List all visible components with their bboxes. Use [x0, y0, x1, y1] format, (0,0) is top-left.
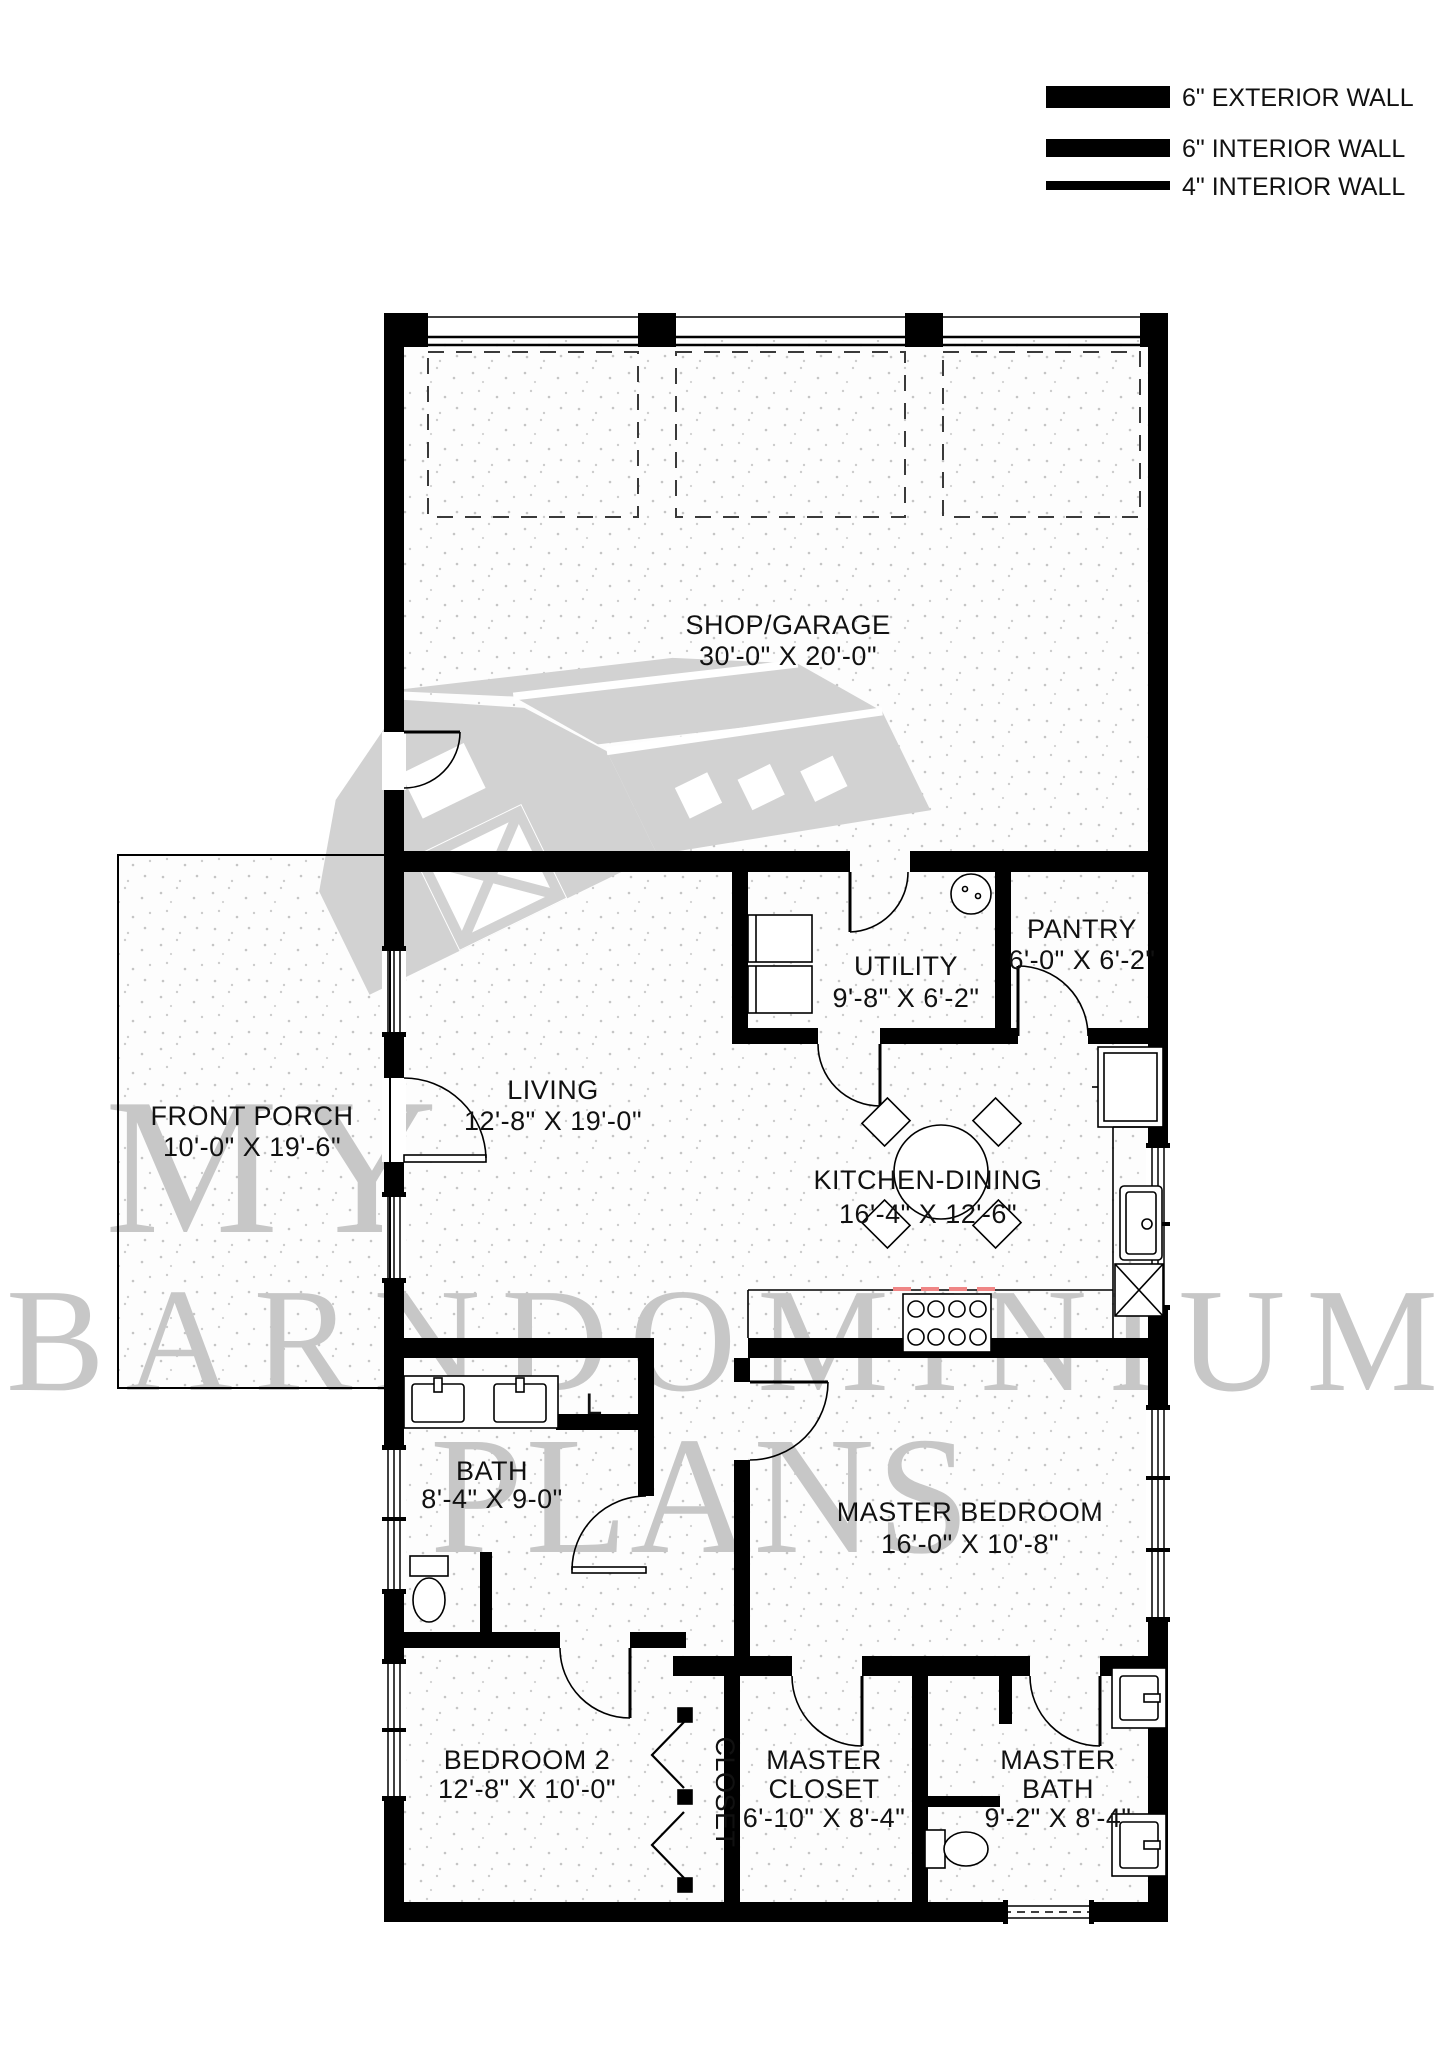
label-front-porch-dims: 10'-0" X 19'-6" — [163, 1132, 341, 1162]
label-living-dims: 12'-8" X 19'-0" — [464, 1106, 642, 1136]
label-bath-dims: 8'-4" X 9-0" — [421, 1484, 562, 1514]
label-master-closet-2: CLOSET — [768, 1774, 879, 1804]
bath-vanity — [404, 1376, 558, 1428]
label-bedroom2-dims: 12'-8" X 10'-0" — [438, 1774, 616, 1804]
label-master-bedroom: MASTER BEDROOM — [837, 1497, 1104, 1527]
window — [1003, 1900, 1094, 1924]
label-master-closet-1: MASTER — [766, 1745, 882, 1775]
label-shop-garage: SHOP/GARAGE — [685, 610, 890, 640]
kitchen-sink-icon — [1120, 1186, 1162, 1260]
label-utility-dims: 9'-8" X 6'-2" — [832, 983, 979, 1013]
wall-legend: 6" EXTERIOR WALL 6" INTERIOR WALL 4" INT… — [1046, 84, 1414, 201]
window — [382, 1192, 406, 1283]
water-heater-icon — [951, 874, 991, 914]
floor-plan-canvas: MY BARNDOMINIUM PLANS — [0, 0, 1445, 2050]
window — [382, 946, 406, 1037]
label-bedroom2: BEDROOM 2 — [444, 1745, 611, 1775]
exterior-wall-swatch — [1046, 86, 1170, 108]
watermark-barndominium: BARNDOMINIUM — [6, 1259, 1438, 1423]
window — [382, 1659, 406, 1801]
label-master-closet-dims: 6'-10" X 8'-4" — [743, 1803, 906, 1833]
label-master-bedroom-dims: 16'-0" X 10'-8" — [881, 1529, 1059, 1559]
label-kitchen-dining-dims: 16'-4" X 12'-6" — [839, 1199, 1017, 1229]
interior-wall-6-swatch — [1046, 139, 1170, 157]
dishwasher-icon — [1115, 1264, 1163, 1316]
vanity-sink-icon — [494, 1378, 546, 1422]
label-bath: BATH — [456, 1456, 528, 1486]
label-kitchen-dining: KITCHEN-DINING — [814, 1165, 1043, 1195]
washer-icon — [748, 915, 812, 962]
master-vanity-sink-icon — [1112, 1668, 1166, 1728]
interior-wall-6-label: 6" INTERIOR WALL — [1182, 135, 1405, 163]
label-master-bath-2: BATH — [1022, 1774, 1094, 1804]
interior-wall-4-label: 4" INTERIOR WALL — [1182, 173, 1405, 201]
label-linen: L — [585, 1388, 602, 1421]
label-shop-garage-dims: 30'-0" X 20'-0" — [699, 641, 877, 671]
label-utility: UTILITY — [854, 951, 958, 981]
label-pantry-dims: 6'-0" X 6'-2" — [1008, 945, 1155, 975]
label-front-porch: FRONT PORCH — [150, 1101, 353, 1131]
dryer-icon — [748, 966, 812, 1013]
toilet-icon — [410, 1556, 448, 1622]
window — [1146, 1405, 1170, 1622]
interior-wall-4-swatch — [1046, 181, 1170, 190]
label-living: LIVING — [507, 1075, 599, 1105]
toilet-icon — [925, 1830, 988, 1868]
refrigerator-icon — [1092, 1047, 1163, 1127]
window — [382, 1445, 406, 1594]
exterior-wall-label: 6" EXTERIOR WALL — [1182, 84, 1414, 112]
vanity-sink-icon — [412, 1378, 464, 1422]
label-master-bath-1: MASTER — [1000, 1745, 1116, 1775]
stove-icon — [903, 1294, 991, 1352]
label-pantry: PANTRY — [1027, 914, 1137, 944]
label-master-bath-dims: 9'-2" X 8'-4" — [984, 1803, 1131, 1833]
label-closet: CLOSET — [710, 1736, 740, 1847]
